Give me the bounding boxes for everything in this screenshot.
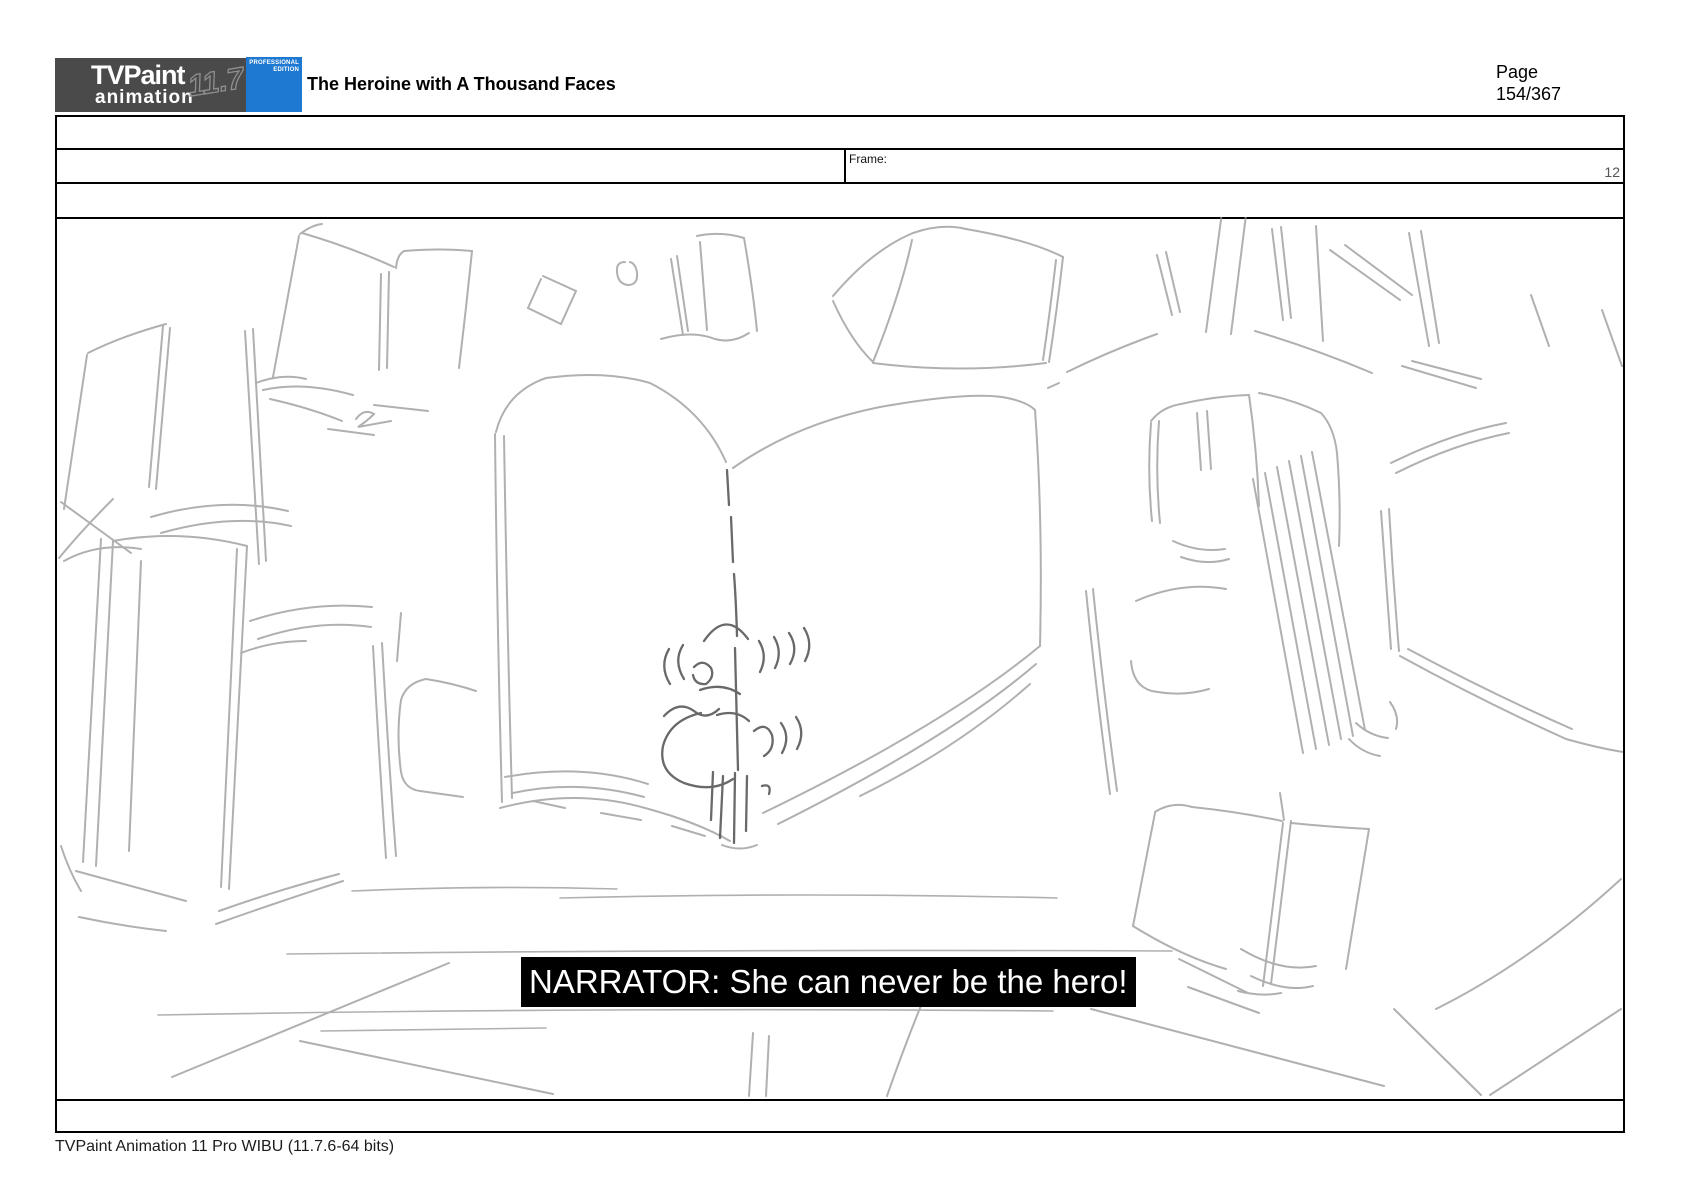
- document-title: The Heroine with A Thousand Faces: [307, 74, 616, 95]
- table-row-divider: [57, 182, 1623, 184]
- logo-brand-text: TVPaint: [91, 62, 185, 89]
- table-row-divider: [57, 148, 1623, 150]
- frame-label: Frame:: [849, 152, 887, 166]
- edition-label-line1: PROFESSIONAL: [246, 60, 299, 67]
- page-indicator: Page 154/367: [1496, 61, 1561, 105]
- logo-sub-text: animation: [95, 88, 194, 107]
- table-row-divider: [57, 1099, 1623, 1101]
- tvpaint-logo: TVPaint animation 11.7: [55, 58, 246, 112]
- edition-label-line2: EDITION: [246, 67, 299, 74]
- logo-version-text: 11.7: [186, 62, 246, 104]
- narration-caption: NARRATOR: She can never be the hero!: [521, 957, 1136, 1007]
- page-label: Page: [1496, 61, 1561, 83]
- frame-cell-divider: [844, 150, 846, 184]
- sketch-figure-strokes: [662, 470, 809, 843]
- professional-edition-badge: PROFESSIONAL EDITION: [246, 57, 302, 112]
- frame-value: 12: [1604, 164, 1620, 180]
- page-number: 154/367: [1496, 83, 1561, 105]
- app-version-footer: TVPaint Animation 11 Pro WIBU (11.7.6-64…: [55, 1138, 394, 1156]
